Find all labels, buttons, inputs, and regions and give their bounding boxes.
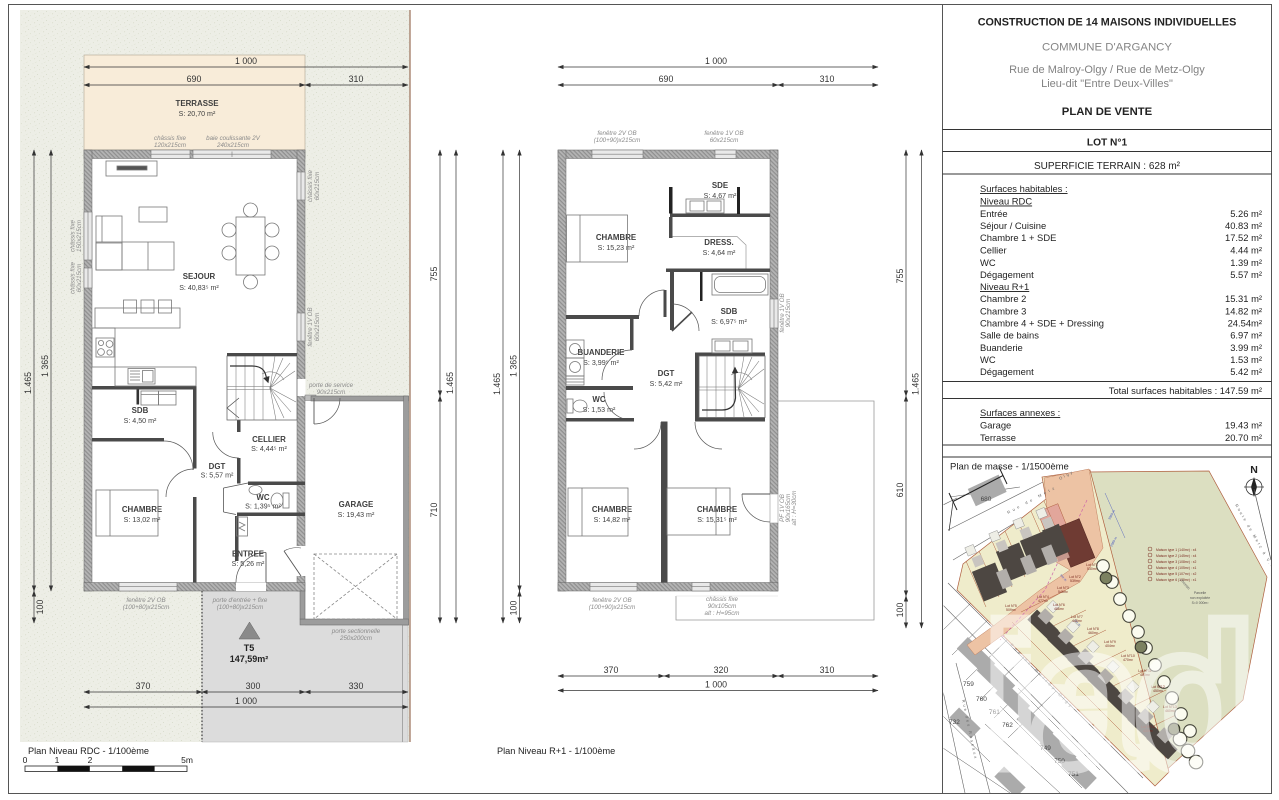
svg-text:N: N xyxy=(1250,464,1258,476)
svg-text:Surfaces habitables :: Surfaces habitables : xyxy=(980,183,1068,194)
svg-text:1 000: 1 000 xyxy=(235,696,257,706)
svg-text:(100+90)x215cm: (100+90)x215cm xyxy=(594,137,641,144)
svg-text:Chambre 1 + SDE: Chambre 1 + SDE xyxy=(980,232,1056,243)
svg-text:DGT: DGT xyxy=(658,369,675,378)
svg-text:759: 759 xyxy=(963,681,974,688)
svg-text:Chambre 3: Chambre 3 xyxy=(980,306,1026,317)
svg-text:710: 710 xyxy=(429,503,439,518)
svg-text:120x215cm: 120x215cm xyxy=(154,142,186,149)
svg-text:porte sectionnelle: porte sectionnelle xyxy=(331,628,381,635)
svg-text:0: 0 xyxy=(23,755,28,765)
svg-text:250x200cm: 250x200cm xyxy=(339,635,372,642)
svg-text:310: 310 xyxy=(349,74,364,84)
svg-text:5m: 5m xyxy=(181,755,193,765)
svg-text:S: 13,02 m²: S: 13,02 m² xyxy=(124,516,161,524)
svg-text:Maison type 3 (108m²) : x2: Maison type 3 (108m²) : x2 xyxy=(1156,560,1196,564)
svg-text:Buanderie: Buanderie xyxy=(980,342,1023,353)
svg-text:100: 100 xyxy=(895,603,905,618)
svg-text:S: 1,53 m²: S: 1,53 m² xyxy=(583,406,616,414)
svg-text:fenêtre 2V OB: fenêtre 2V OB xyxy=(597,130,636,137)
svg-text:5.57 m²: 5.57 m² xyxy=(1230,269,1262,280)
svg-text:19.43 m²: 19.43 m² xyxy=(1225,420,1262,431)
svg-text:1.465: 1.465 xyxy=(23,372,33,394)
svg-text:1.465: 1.465 xyxy=(445,372,455,394)
svg-text:310: 310 xyxy=(820,74,835,84)
svg-text:BUANDERIE: BUANDERIE xyxy=(578,348,625,357)
svg-text:Maison type 6 (139m²) : x1: Maison type 6 (139m²) : x1 xyxy=(1156,578,1196,582)
svg-text:WC: WC xyxy=(980,257,996,268)
svg-text:Dégagement: Dégagement xyxy=(980,366,1034,377)
svg-text:CONSTRUCTION DE 14 MAISONS IND: CONSTRUCTION DE 14 MAISONS INDIVIDUELLES xyxy=(978,17,1237,29)
svg-text:24.54m²: 24.54m² xyxy=(1228,318,1262,329)
svg-text:fenêtre 1V OB: fenêtre 1V OB xyxy=(307,307,314,346)
svg-text:1 000: 1 000 xyxy=(705,56,727,66)
svg-text:1 000: 1 000 xyxy=(235,56,257,66)
svg-text:610: 610 xyxy=(895,483,905,498)
svg-text:CHAMBRE: CHAMBRE xyxy=(596,233,636,242)
svg-text:732: 732 xyxy=(949,719,960,726)
svg-text:Maison type 4 (105m²) : x1: Maison type 4 (105m²) : x1 xyxy=(1156,566,1196,570)
svg-text:20.70 m²: 20.70 m² xyxy=(1225,432,1262,443)
svg-text:Chambre 2: Chambre 2 xyxy=(980,293,1026,304)
svg-text:17.52 m²: 17.52 m² xyxy=(1225,232,1262,243)
svg-text:1 000: 1 000 xyxy=(705,680,727,690)
svg-text:Chambre 4 + SDE + Dressing: Chambre 4 + SDE + Dressing xyxy=(980,318,1104,329)
svg-text:1.465: 1.465 xyxy=(492,373,502,395)
svg-text:PLAN DE VENTE: PLAN DE VENTE xyxy=(1062,106,1153,118)
svg-text:Surfaces annexes :: Surfaces annexes : xyxy=(980,407,1060,418)
svg-text:755: 755 xyxy=(429,267,439,282)
svg-text:1 365: 1 365 xyxy=(509,355,519,377)
svg-text:90x215cm: 90x215cm xyxy=(317,389,346,396)
svg-text:Total surfaces habitables : 14: Total surfaces habitables : 147.59 m² xyxy=(1109,385,1262,396)
svg-text:WC: WC xyxy=(592,395,605,404)
svg-text:S: 5,26 m²: S: 5,26 m² xyxy=(232,560,265,568)
svg-text:châssis fixe: châssis fixe xyxy=(154,135,187,142)
svg-text:alt : H=95cm: alt : H=95cm xyxy=(705,610,740,617)
svg-text:1.39 m²: 1.39 m² xyxy=(1230,257,1262,268)
svg-text:300: 300 xyxy=(246,681,261,691)
svg-text:1.465: 1.465 xyxy=(911,373,921,395)
svg-text:S: 1,39⁵ m²: S: 1,39⁵ m² xyxy=(245,503,281,511)
svg-text:6.97 m²: 6.97 m² xyxy=(1230,330,1262,341)
svg-text:S: 15,23 m²: S: 15,23 m² xyxy=(598,244,635,252)
svg-text:CHAMBRE: CHAMBRE xyxy=(122,505,162,514)
svg-text:S: 20,70 m²: S: 20,70 m² xyxy=(179,110,216,118)
svg-text:310: 310 xyxy=(820,665,835,675)
svg-text:Salle de bains: Salle de bains xyxy=(980,330,1039,341)
svg-text:SUPERFICIE TERRAIN : 628 m²: SUPERFICIE TERRAIN : 628 m² xyxy=(1034,161,1181,172)
svg-text:60x215cm: 60x215cm xyxy=(710,137,739,144)
svg-text:Rue de Malroy-Olgy / Rue de Me: Rue de Malroy-Olgy / Rue de Metz-Olgy xyxy=(1009,64,1205,76)
svg-text:châssis fixe: châssis fixe xyxy=(706,596,739,603)
svg-text:Entrée: Entrée xyxy=(980,208,1008,219)
svg-text:baie coulissante 2V: baie coulissante 2V xyxy=(206,135,261,142)
svg-text:(100+80)x215cm: (100+80)x215cm xyxy=(123,604,170,611)
svg-text:5.26 m²: 5.26 m² xyxy=(1230,208,1262,219)
svg-text:150x215cm: 150x215cm xyxy=(76,220,83,252)
svg-text:240x215cm: 240x215cm xyxy=(216,142,249,149)
svg-text:Garage: Garage xyxy=(980,420,1011,431)
svg-text:LOT N°1: LOT N°1 xyxy=(1087,138,1128,149)
svg-text:147,59m²: 147,59m² xyxy=(230,654,269,664)
svg-text:1: 1 xyxy=(55,755,60,765)
svg-text:530m²: 530m² xyxy=(1087,567,1098,571)
svg-text:TERRASSE: TERRASSE xyxy=(176,99,219,108)
svg-text:SDB: SDB xyxy=(721,307,738,316)
svg-text:S: 3,99⁵ m²: S: 3,99⁵ m² xyxy=(583,359,619,367)
svg-text:2: 2 xyxy=(88,755,93,765)
svg-text:60x215cm: 60x215cm xyxy=(314,172,321,201)
svg-text:châssis fixe: châssis fixe xyxy=(307,169,314,202)
svg-text:S: 4,64 m²: S: 4,64 m² xyxy=(703,249,736,257)
svg-text:S: 4,50 m²: S: 4,50 m² xyxy=(124,417,157,425)
svg-text:DRESS.: DRESS. xyxy=(704,238,733,247)
svg-text:CHAMBRE: CHAMBRE xyxy=(697,505,737,514)
svg-text:S: 4,44⁵ m²: S: 4,44⁵ m² xyxy=(251,445,287,453)
svg-text:S: 5,42 m²: S: 5,42 m² xyxy=(650,380,683,388)
svg-text:Maison type 2 (145m²) : x4: Maison type 2 (145m²) : x4 xyxy=(1156,554,1196,558)
svg-text:90x215cm: 90x215cm xyxy=(785,299,792,328)
svg-text:15.31 m²: 15.31 m² xyxy=(1225,293,1262,304)
svg-text:Cellier: Cellier xyxy=(980,245,1007,256)
svg-text:SDB: SDB xyxy=(132,406,149,415)
svg-text:60x215cm: 60x215cm xyxy=(76,264,83,293)
svg-text:fenêtre 2V OB: fenêtre 2V OB xyxy=(592,597,631,604)
svg-text:alt : H=30cm: alt : H=30cm xyxy=(791,491,798,526)
svg-text:680: 680 xyxy=(981,496,992,503)
svg-text:1 365: 1 365 xyxy=(40,355,50,377)
svg-text:90x105cm: 90x105cm xyxy=(708,603,737,610)
svg-text:Maison type 5 (107m²) : x2: Maison type 5 (107m²) : x2 xyxy=(1156,572,1196,576)
svg-text:100: 100 xyxy=(509,601,519,616)
svg-text:Plan Niveau R+1 - 1/100ème: Plan Niveau R+1 - 1/100ème xyxy=(497,746,615,756)
svg-text:Terrasse: Terrasse xyxy=(980,432,1016,443)
svg-text:S: 40,83⁵ m²: S: 40,83⁵ m² xyxy=(179,284,219,292)
svg-text:Séjour / Cuisine: Séjour / Cuisine xyxy=(980,220,1046,231)
svg-text:Niveau R+1: Niveau R+1 xyxy=(980,281,1029,292)
svg-text:S: 14,82 m²: S: 14,82 m² xyxy=(594,516,631,524)
svg-text:COMMUNE D'ARGANCY: COMMUNE D'ARGANCY xyxy=(1042,42,1172,54)
svg-text:GARAGE: GARAGE xyxy=(339,500,374,509)
svg-text:539m²: 539m² xyxy=(1070,579,1081,583)
svg-text:4.44 m²: 4.44 m² xyxy=(1230,245,1262,256)
svg-text:370: 370 xyxy=(136,681,151,691)
svg-text:fenêtre 1V OB: fenêtre 1V OB xyxy=(704,130,743,137)
svg-text:40.83 m²: 40.83 m² xyxy=(1225,220,1262,231)
svg-text:CHAMBRE: CHAMBRE xyxy=(592,505,632,514)
svg-text:(100+90)x215cm: (100+90)x215cm xyxy=(589,604,636,611)
svg-text:iad: iad xyxy=(983,586,1248,800)
svg-text:SEJOUR: SEJOUR xyxy=(183,272,216,281)
svg-text:(100+80)x215cm: (100+80)x215cm xyxy=(217,604,264,611)
svg-text:T5: T5 xyxy=(244,643,255,653)
svg-text:Maison type 1 (140m²) : x4: Maison type 1 (140m²) : x4 xyxy=(1156,548,1196,552)
svg-text:690: 690 xyxy=(659,74,674,84)
svg-text:CELLIER: CELLIER xyxy=(252,435,286,444)
svg-text:755: 755 xyxy=(895,269,905,284)
svg-text:DGT: DGT xyxy=(209,462,226,471)
svg-text:5.42 m²: 5.42 m² xyxy=(1230,366,1262,377)
svg-text:S: 5,57 m²: S: 5,57 m² xyxy=(201,472,234,480)
svg-text:60x215cm: 60x215cm xyxy=(314,313,321,342)
svg-text:porte de service: porte de service xyxy=(308,382,354,389)
svg-text:370: 370 xyxy=(604,665,619,675)
svg-text:Lieu-dit "Entre Deux-Villes": Lieu-dit "Entre Deux-Villes" xyxy=(1041,78,1173,90)
svg-text:3.99 m²: 3.99 m² xyxy=(1230,342,1262,353)
svg-text:Dégagement: Dégagement xyxy=(980,269,1034,280)
svg-text:1.53 m²: 1.53 m² xyxy=(1230,354,1262,365)
svg-text:690: 690 xyxy=(187,74,202,84)
svg-text:330: 330 xyxy=(349,681,364,691)
svg-text:ENTREE: ENTREE xyxy=(232,550,264,559)
svg-text:Niveau RDC: Niveau RDC xyxy=(980,196,1032,207)
svg-text:fenêtre 2V OB: fenêtre 2V OB xyxy=(126,597,165,604)
svg-text:porte d'entrée + fixe: porte d'entrée + fixe xyxy=(212,597,268,604)
svg-text:S: 19,43 m²: S: 19,43 m² xyxy=(338,511,375,519)
svg-text:S: 6,97⁵ m²: S: 6,97⁵ m² xyxy=(711,318,747,326)
svg-text:WC: WC xyxy=(980,354,996,365)
svg-text:320: 320 xyxy=(714,665,729,675)
svg-text:14.82 m²: 14.82 m² xyxy=(1225,306,1262,317)
svg-text:Plan de masse - 1/1500ème: Plan de masse - 1/1500ème xyxy=(950,462,1069,473)
svg-text:SDE: SDE xyxy=(712,181,728,190)
svg-text:S: 15,31⁵ m²: S: 15,31⁵ m² xyxy=(697,516,737,524)
svg-text:100: 100 xyxy=(35,600,45,615)
